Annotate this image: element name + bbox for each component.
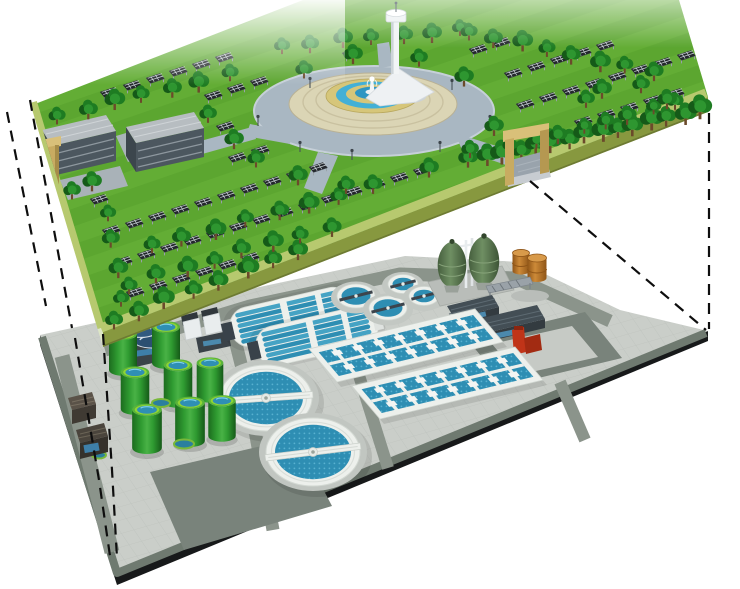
atmosphere-fade [0,0,345,85]
atmosphere-fade-right [345,0,740,48]
ground-pond [152,399,170,407]
green-storage-tank [130,404,164,459]
green-storage-tank [206,395,237,446]
dashed-projection-line [7,112,46,306]
illustration-stage [0,0,740,589]
fuel-drum [513,249,530,274]
cutaway-illustration [0,0,740,589]
ground-pond [174,440,194,449]
